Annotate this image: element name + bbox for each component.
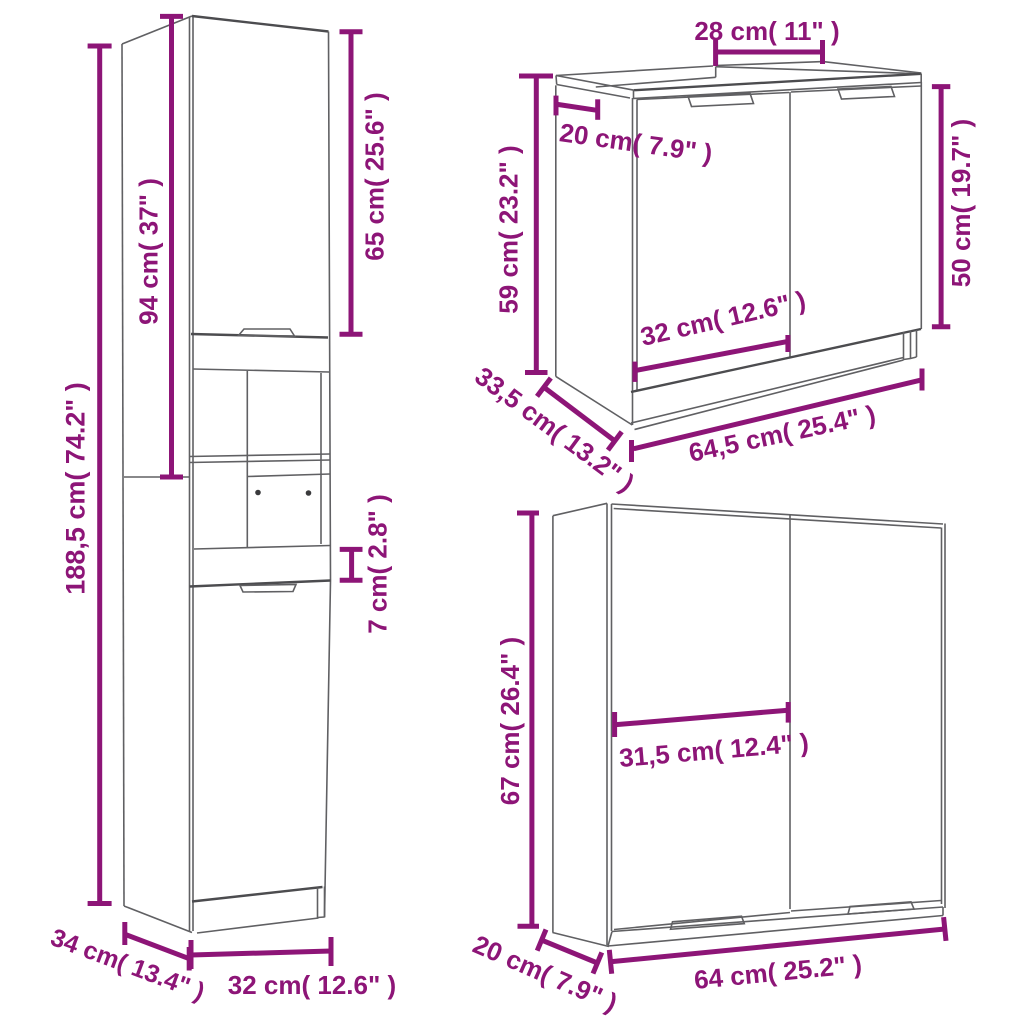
svg-text:65 cm( 25.6" ): 65 cm( 25.6" ) bbox=[360, 92, 390, 260]
svg-text:32 cm( 12.6" ): 32 cm( 12.6" ) bbox=[228, 970, 396, 1000]
svg-text:94 cm( 37" ): 94 cm( 37" ) bbox=[134, 178, 164, 325]
svg-text:28 cm( 11" ): 28 cm( 11" ) bbox=[694, 16, 839, 46]
svg-text:67 cm( 26.4" ): 67 cm( 26.4" ) bbox=[495, 637, 525, 805]
svg-text:59 cm( 23.2" ): 59 cm( 23.2" ) bbox=[494, 145, 524, 313]
svg-text:50 cm( 19.7" ): 50 cm( 19.7" ) bbox=[946, 119, 976, 287]
svg-text:188,5 cm( 74.2" ): 188,5 cm( 74.2" ) bbox=[61, 382, 91, 594]
svg-text:7 cm( 2.8" ): 7 cm( 2.8" ) bbox=[363, 494, 393, 634]
